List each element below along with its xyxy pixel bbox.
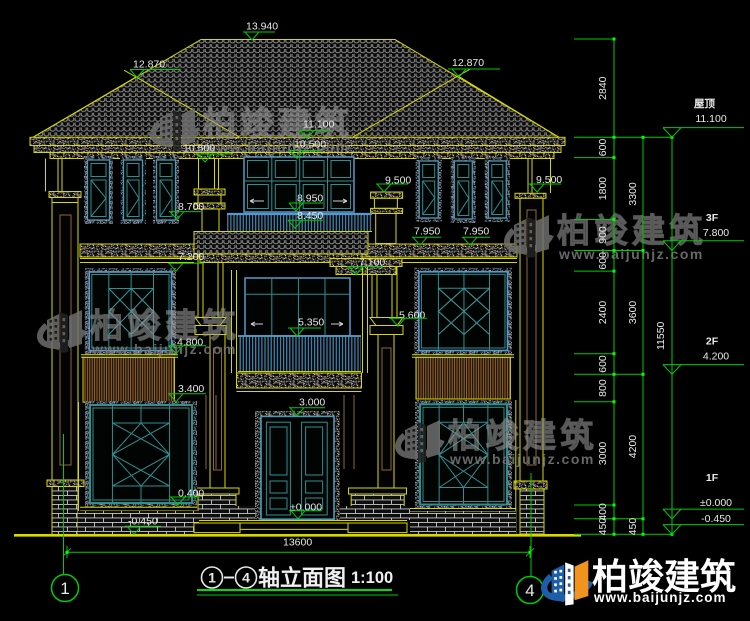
svg-text:7.950: 7.950 bbox=[463, 226, 489, 238]
svg-text:900: 900 bbox=[597, 226, 609, 244]
svg-text:2840: 2840 bbox=[597, 76, 609, 100]
svg-text:450: 450 bbox=[627, 518, 639, 536]
svg-text:10.500: 10.500 bbox=[183, 143, 215, 155]
svg-text:-0.450: -0.450 bbox=[701, 513, 731, 525]
svg-text:12.870: 12.870 bbox=[133, 59, 165, 71]
svg-text:7.200: 7.200 bbox=[178, 251, 204, 263]
svg-text:www.baijunjz.com: www.baijunjz.com bbox=[204, 139, 350, 155]
svg-text:2F: 2F bbox=[706, 336, 719, 348]
svg-text:5.350: 5.350 bbox=[298, 317, 324, 329]
svg-text:13.940: 13.940 bbox=[246, 21, 278, 33]
svg-text:www.baijunjz.com: www.baijunjz.com bbox=[449, 451, 595, 467]
svg-text:1: 1 bbox=[60, 579, 69, 598]
svg-text:10.500: 10.500 bbox=[294, 138, 326, 150]
svg-text:1800: 1800 bbox=[597, 177, 609, 201]
svg-text:4.800: 4.800 bbox=[177, 337, 203, 349]
svg-text:1: 1 bbox=[208, 570, 216, 586]
svg-text:柏竣建筑: 柏竣建筑 bbox=[448, 417, 598, 454]
svg-text:屋顶: 屋顶 bbox=[694, 98, 715, 110]
svg-text:600: 600 bbox=[597, 139, 609, 157]
svg-text:600: 600 bbox=[597, 252, 609, 270]
svg-text:柏竣建筑: 柏竣建筑 bbox=[557, 212, 707, 249]
svg-text:柏竣建筑: 柏竣建筑 bbox=[90, 307, 240, 344]
svg-text:450: 450 bbox=[597, 518, 609, 536]
svg-text:12.870: 12.870 bbox=[452, 57, 484, 69]
svg-text:www.baijunjz.com: www.baijunjz.com bbox=[593, 590, 727, 605]
svg-text:4200: 4200 bbox=[627, 435, 639, 459]
svg-text:1F: 1F bbox=[706, 472, 719, 484]
svg-text:4: 4 bbox=[525, 581, 534, 600]
svg-text:3300: 3300 bbox=[627, 182, 639, 206]
svg-text:2400: 2400 bbox=[597, 301, 609, 325]
svg-text:轴立面图: 轴立面图 bbox=[258, 566, 346, 591]
svg-text:0.400: 0.400 bbox=[178, 488, 204, 500]
svg-text:4: 4 bbox=[242, 570, 250, 586]
svg-text:7.950: 7.950 bbox=[414, 226, 440, 238]
svg-text:9.500: 9.500 bbox=[385, 175, 411, 187]
svg-text:www.baijunjz.com: www.baijunjz.com bbox=[91, 341, 237, 357]
svg-text:3.400: 3.400 bbox=[178, 383, 204, 395]
svg-text:3F: 3F bbox=[706, 212, 719, 224]
svg-text:-0.450: -0.450 bbox=[128, 516, 158, 528]
svg-text:13600: 13600 bbox=[283, 537, 312, 549]
svg-text:11.100: 11.100 bbox=[695, 113, 726, 125]
svg-text:800: 800 bbox=[597, 379, 609, 397]
svg-text:3600: 3600 bbox=[627, 301, 639, 325]
svg-text:3000: 3000 bbox=[597, 442, 609, 466]
svg-text:600: 600 bbox=[597, 355, 609, 373]
svg-text:3.000: 3.000 bbox=[299, 397, 325, 409]
svg-text:11.100: 11.100 bbox=[303, 118, 334, 130]
svg-text:±0.000: ±0.000 bbox=[700, 497, 732, 509]
svg-text:±0.000: ±0.000 bbox=[290, 502, 322, 514]
svg-text:4.200: 4.200 bbox=[703, 351, 729, 363]
svg-text:1:100: 1:100 bbox=[351, 569, 393, 587]
svg-text:11550: 11550 bbox=[655, 321, 667, 350]
svg-text:5.600: 5.600 bbox=[399, 310, 425, 322]
svg-text:www.baijunjz.com: www.baijunjz.com bbox=[558, 246, 704, 262]
svg-text:7.800: 7.800 bbox=[703, 227, 729, 239]
